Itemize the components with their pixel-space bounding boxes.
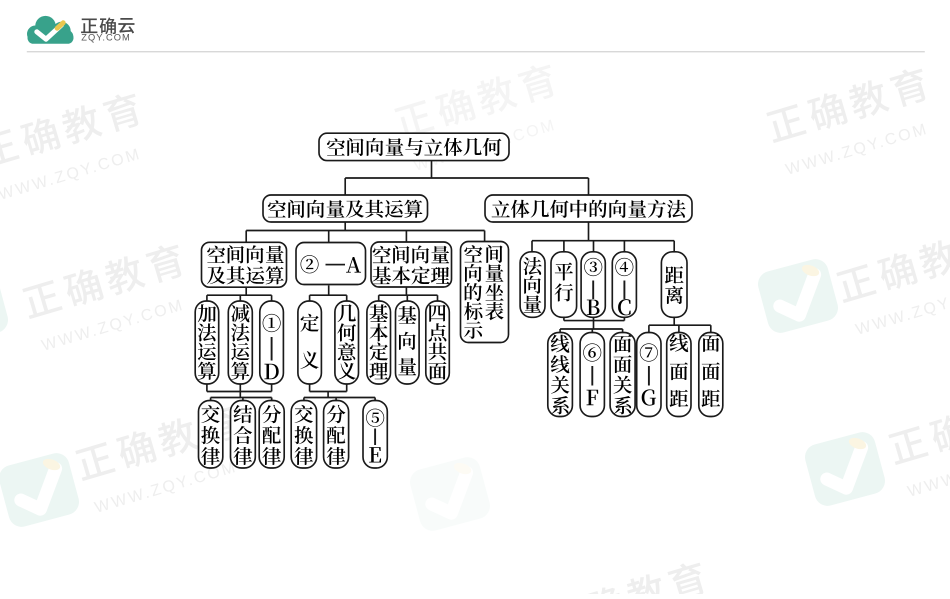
svg-text:ZQY.COM: ZQY.COM — [81, 33, 131, 43]
